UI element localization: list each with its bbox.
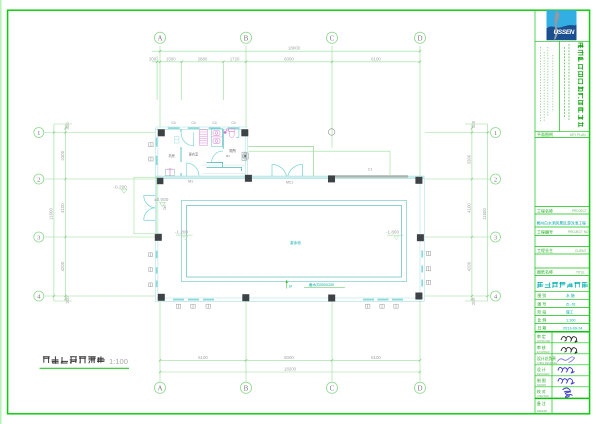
svg-text:CHECKED: CHECKED xyxy=(537,395,549,398)
svg-text:机房: 机房 xyxy=(169,153,175,158)
svg-text:游泳池: 游泳池 xyxy=(290,240,301,245)
svg-text:±0.000: ±0.000 xyxy=(154,197,169,202)
svg-text:日 期: 日 期 xyxy=(538,325,547,330)
svg-text:2: 2 xyxy=(37,176,40,183)
svg-text:-1.800: -1.800 xyxy=(386,229,399,234)
svg-text:TITLE: TITLE xyxy=(576,271,585,275)
svg-text:A: A xyxy=(157,34,162,42)
svg-text:D: D xyxy=(417,34,422,42)
svg-text:C4: C4 xyxy=(231,121,235,125)
svg-text:郴州白水洞风景区游泳池工程: 郴州白水洞风景区游泳池工程 xyxy=(537,221,587,226)
svg-text:阶 段: 阶 段 xyxy=(538,309,547,314)
svg-text:-0.200: -0.200 xyxy=(114,184,128,189)
svg-text:CLIENT: CLIENT xyxy=(575,249,586,253)
svg-text:CHIEF DESIGNER: CHIEF DESIGNER xyxy=(537,362,558,365)
svg-text:200: 200 xyxy=(471,297,476,305)
svg-text:C4: C4 xyxy=(191,121,195,125)
svg-text:2013-09-24: 2013-09-24 xyxy=(563,326,582,330)
svg-text:PROJECT NO.: PROJECT NO. xyxy=(568,230,589,234)
svg-text:200: 200 xyxy=(149,56,157,61)
svg-text:KEY PLAN: KEY PLAN xyxy=(570,133,586,137)
svg-text:PROJECT: PROJECT xyxy=(572,209,587,213)
svg-text:EXAMINED: EXAMINED xyxy=(537,351,550,354)
svg-text:M4: M4 xyxy=(226,154,230,158)
svg-text:REMARK: REMARK xyxy=(537,410,548,413)
svg-text:C1: C1 xyxy=(368,168,372,172)
svg-text:6000: 6000 xyxy=(284,56,294,61)
svg-text:2: 2 xyxy=(494,176,497,183)
svg-text:4100: 4100 xyxy=(466,203,471,213)
svg-text:B: B xyxy=(244,384,249,392)
svg-text:M1: M1 xyxy=(188,179,193,183)
svg-text:APPROVED: APPROVED xyxy=(537,340,551,343)
svg-text:截水沟300X200: 截水沟300X200 xyxy=(309,282,334,287)
svg-text:1#: 1# xyxy=(289,284,293,288)
svg-text:1: 1 xyxy=(494,130,497,137)
svg-text:审 定: 审 定 xyxy=(537,334,546,339)
svg-text:6000: 6000 xyxy=(284,355,294,360)
svg-text:6100: 6100 xyxy=(198,355,208,360)
svg-text:300: 300 xyxy=(65,122,70,130)
svg-text:工程编号: 工程编号 xyxy=(537,228,553,234)
svg-text:1500: 1500 xyxy=(166,56,176,61)
svg-text:M2: M2 xyxy=(163,206,167,211)
svg-text:11600: 11600 xyxy=(48,208,53,220)
svg-text:图 号: 图 号 xyxy=(538,301,547,306)
svg-text:厕所: 厕所 xyxy=(229,148,236,153)
svg-text:2880: 2880 xyxy=(198,56,208,61)
svg-text:校 对: 校 对 xyxy=(537,389,546,394)
svg-text:3300: 3300 xyxy=(466,154,471,164)
svg-text:比 例: 比 例 xyxy=(538,317,547,322)
svg-text:C4: C4 xyxy=(171,121,175,125)
svg-text:4200: 4200 xyxy=(60,261,65,271)
svg-text:DRAWN: DRAWN xyxy=(537,384,546,387)
svg-text:18000: 18000 xyxy=(288,46,301,51)
svg-text:1: 1 xyxy=(37,130,40,137)
svg-text:6100: 6100 xyxy=(371,56,381,61)
svg-text:设 计: 设 计 xyxy=(537,367,546,372)
svg-text:300: 300 xyxy=(471,120,476,128)
svg-text:200: 200 xyxy=(65,296,70,304)
svg-text:1:100: 1:100 xyxy=(109,357,128,366)
svg-text:更衣室: 更衣室 xyxy=(189,151,199,156)
svg-text:4100: 4100 xyxy=(60,203,65,213)
svg-text:图纸名称: 图纸名称 xyxy=(537,269,553,275)
svg-text:图 别: 图 别 xyxy=(538,293,547,298)
svg-text:施工: 施工 xyxy=(566,309,574,314)
svg-text:3300: 3300 xyxy=(60,150,65,160)
svg-text:18200: 18200 xyxy=(284,367,297,372)
svg-text:工程名称: 工程名称 xyxy=(537,207,553,213)
svg-text:工程业主: 工程业主 xyxy=(537,247,553,253)
svg-text:C: C xyxy=(330,34,335,42)
svg-text:C: C xyxy=(330,384,335,392)
svg-text:4200: 4200 xyxy=(466,261,471,271)
svg-text:设计总负责: 设计总负责 xyxy=(537,356,556,361)
svg-text:6100: 6100 xyxy=(371,355,381,360)
svg-text:平面图例: 平面图例 xyxy=(537,131,553,137)
svg-text:MC1: MC1 xyxy=(286,181,293,185)
svg-text:制 图: 制 图 xyxy=(537,378,546,383)
svg-text:11600: 11600 xyxy=(482,208,487,220)
svg-text:D: D xyxy=(417,384,422,392)
svg-text:A: A xyxy=(157,384,162,392)
svg-text:1:100: 1:100 xyxy=(566,318,576,322)
svg-text:备 注: 备 注 xyxy=(537,401,546,406)
svg-text:C4: C4 xyxy=(212,121,216,125)
svg-text:水 施: 水 施 xyxy=(566,293,575,298)
svg-text:1720: 1720 xyxy=(230,56,240,61)
svg-text:-1.200: -1.200 xyxy=(175,229,188,234)
svg-text:DESIGNED: DESIGNED xyxy=(537,373,550,376)
svg-text:USSEN: USSEN xyxy=(554,29,575,36)
svg-text:ZL-01: ZL-01 xyxy=(566,302,576,306)
svg-text:审 核: 审 核 xyxy=(537,345,546,350)
svg-text:B: B xyxy=(244,34,249,42)
